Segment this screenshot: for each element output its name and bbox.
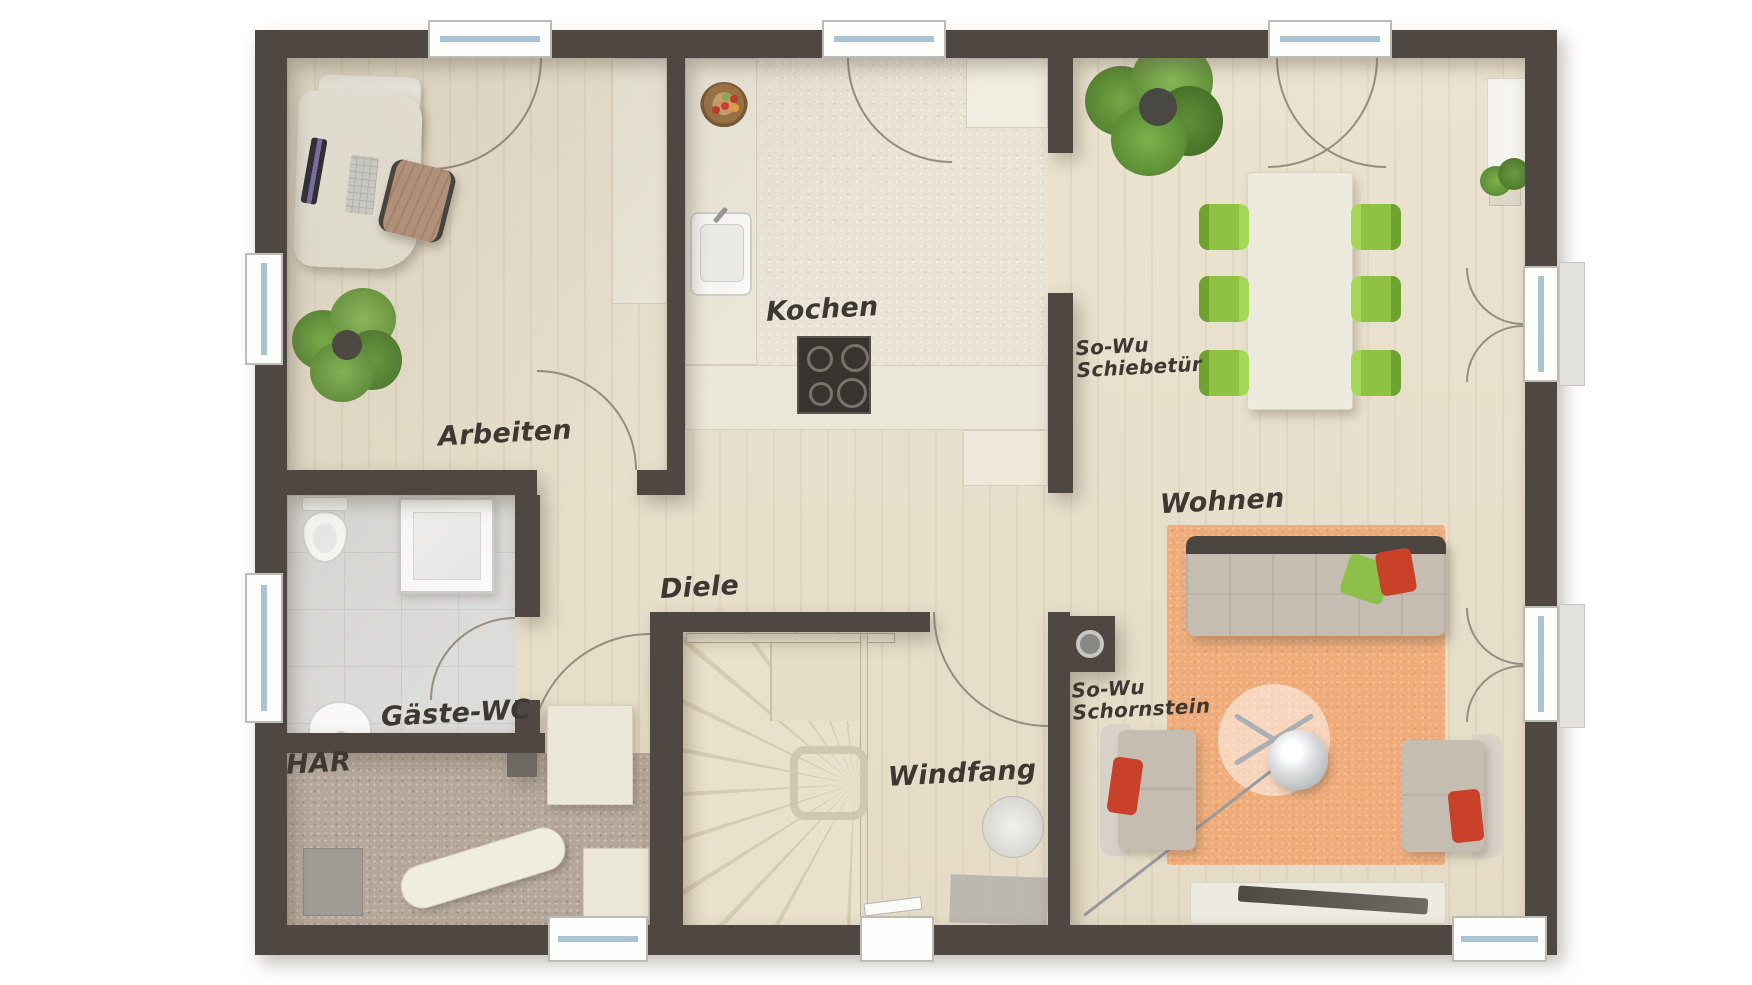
wall-stair-left — [650, 612, 683, 925]
entrance-threshold — [860, 916, 934, 962]
duct-box — [507, 753, 537, 777]
window — [1268, 20, 1392, 58]
terrace-door-sill — [1559, 604, 1585, 728]
wall-wc-right-upper — [515, 495, 540, 617]
window — [428, 20, 552, 58]
wall-stair-top — [650, 612, 930, 632]
terrace-door-opening — [1523, 606, 1559, 722]
window — [245, 573, 283, 723]
room-label-har: HAR — [285, 746, 352, 780]
wall-left — [255, 30, 287, 955]
terrace-door-sill — [1559, 262, 1585, 386]
wall-kitchen-dining-lower — [1048, 293, 1073, 493]
wall-arbeiten-wc-left — [287, 470, 537, 495]
window — [548, 916, 648, 962]
window — [822, 20, 946, 58]
window — [1452, 916, 1547, 962]
floor-plan-canvas: Arbeiten Kochen Diele Gäste-WC HAR Windf… — [0, 0, 1752, 985]
wall-kitchen-dining-upper — [1048, 58, 1073, 153]
cabinet — [547, 705, 633, 805]
window — [245, 253, 283, 365]
annotation-schornstein: So-Wu Schornstein — [1071, 672, 1211, 724]
room-label-kochen: Kochen — [765, 291, 879, 328]
wall-arbeiten-kochen — [667, 58, 685, 470]
walls — [0, 0, 1752, 985]
chimney — [1065, 616, 1115, 672]
room-label-diele: Diele — [659, 570, 740, 605]
wall-arbeiten-wc-right — [637, 470, 685, 495]
terrace-door-opening — [1523, 266, 1559, 382]
wall-right — [1525, 30, 1557, 955]
room-label-wohnen: Wohnen — [1159, 483, 1285, 520]
chimney-flue — [1076, 630, 1104, 658]
annotation-schiebetuer: So-Wu Schiebetür — [1075, 331, 1203, 382]
